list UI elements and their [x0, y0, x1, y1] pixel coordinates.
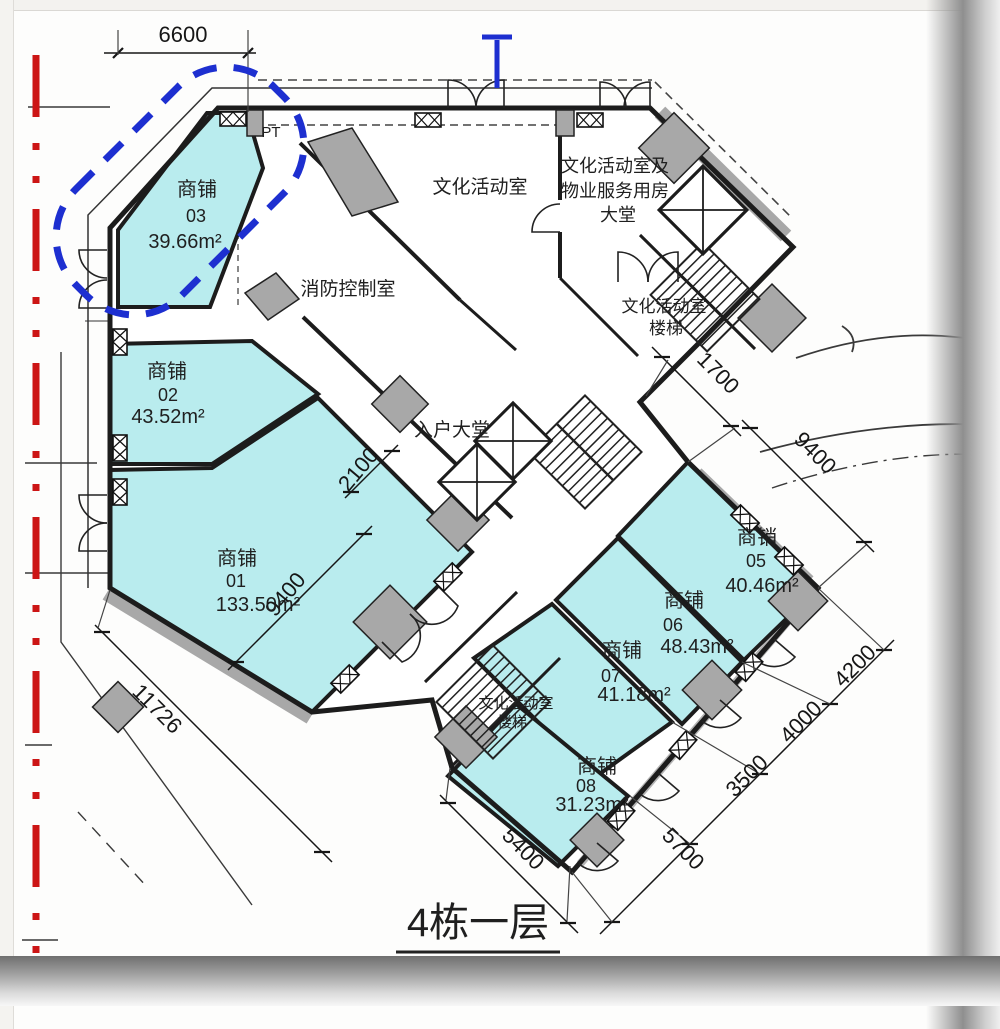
svg-text:商铺: 商铺 — [664, 589, 704, 612]
dim-3500: 3500 — [721, 750, 773, 802]
label-lobby-line3: 大堂 — [600, 205, 636, 225]
svg-text:39.66m²: 39.66m² — [148, 231, 222, 253]
svg-text:商销: 商销 — [737, 526, 777, 549]
label-stair-s-line1: 文化活动室 — [478, 695, 553, 712]
dim-4200: 4200 — [829, 640, 881, 692]
label-cultural-activity-room: 文化活动室 — [432, 176, 527, 198]
page-shadow-bottom — [0, 956, 1000, 1006]
floorplan-page: 6600 1700 9400 2100 9400 11726 5400 5700… — [0, 0, 1000, 1029]
svg-text:商铺: 商铺 — [602, 639, 642, 662]
svg-text:商铺: 商铺 — [577, 755, 617, 778]
page-edge-left — [0, 0, 14, 1029]
svg-text:133.50m²: 133.50m² — [216, 594, 301, 616]
label-pt: PT — [261, 124, 280, 141]
page-edge-top — [0, 0, 1000, 11]
dim-5700: 5700 — [657, 823, 709, 875]
svg-text:07: 07 — [601, 666, 621, 686]
label-stair-ne-line1: 文化活动室 — [622, 297, 707, 316]
svg-text:40.46m²: 40.46m² — [725, 575, 799, 597]
svg-text:08: 08 — [576, 776, 596, 796]
svg-text:43.52m²: 43.52m² — [131, 406, 205, 428]
svg-text:商铺: 商铺 — [147, 360, 187, 383]
svg-text:05: 05 — [746, 551, 766, 571]
svg-text:01: 01 — [226, 571, 246, 591]
svg-text:48.43m²: 48.43m² — [660, 636, 734, 658]
label-fire-control-room: 消防控制室 — [300, 278, 395, 300]
page-shadow-right — [926, 0, 1000, 1029]
svg-text:商铺: 商铺 — [177, 178, 217, 201]
dim-top: 6600 — [159, 22, 208, 47]
dim-4000: 4000 — [775, 696, 827, 748]
label-stair-s-line2: 楼梯 — [497, 714, 527, 731]
label-entry-lobby: 入户大堂 — [414, 419, 490, 441]
svg-text:03: 03 — [186, 206, 206, 226]
svg-text:商铺: 商铺 — [217, 547, 257, 570]
svg-text:31.23m²: 31.23m² — [555, 794, 629, 816]
dim-1700: 1700 — [692, 347, 744, 399]
label-lobby-line1: 文化活动室及 — [561, 156, 669, 176]
page-title: 4栋一层 — [407, 901, 549, 945]
label-stair-ne-line2: 楼梯 — [649, 319, 683, 338]
floor-plan-drawing: 6600 1700 9400 2100 9400 11726 5400 5700… — [0, 0, 1000, 1029]
label-lobby-line2: 物业服务用房 — [561, 181, 669, 201]
svg-text:02: 02 — [158, 385, 178, 405]
svg-text:41.18m²: 41.18m² — [597, 684, 671, 706]
svg-text:06: 06 — [663, 615, 683, 635]
